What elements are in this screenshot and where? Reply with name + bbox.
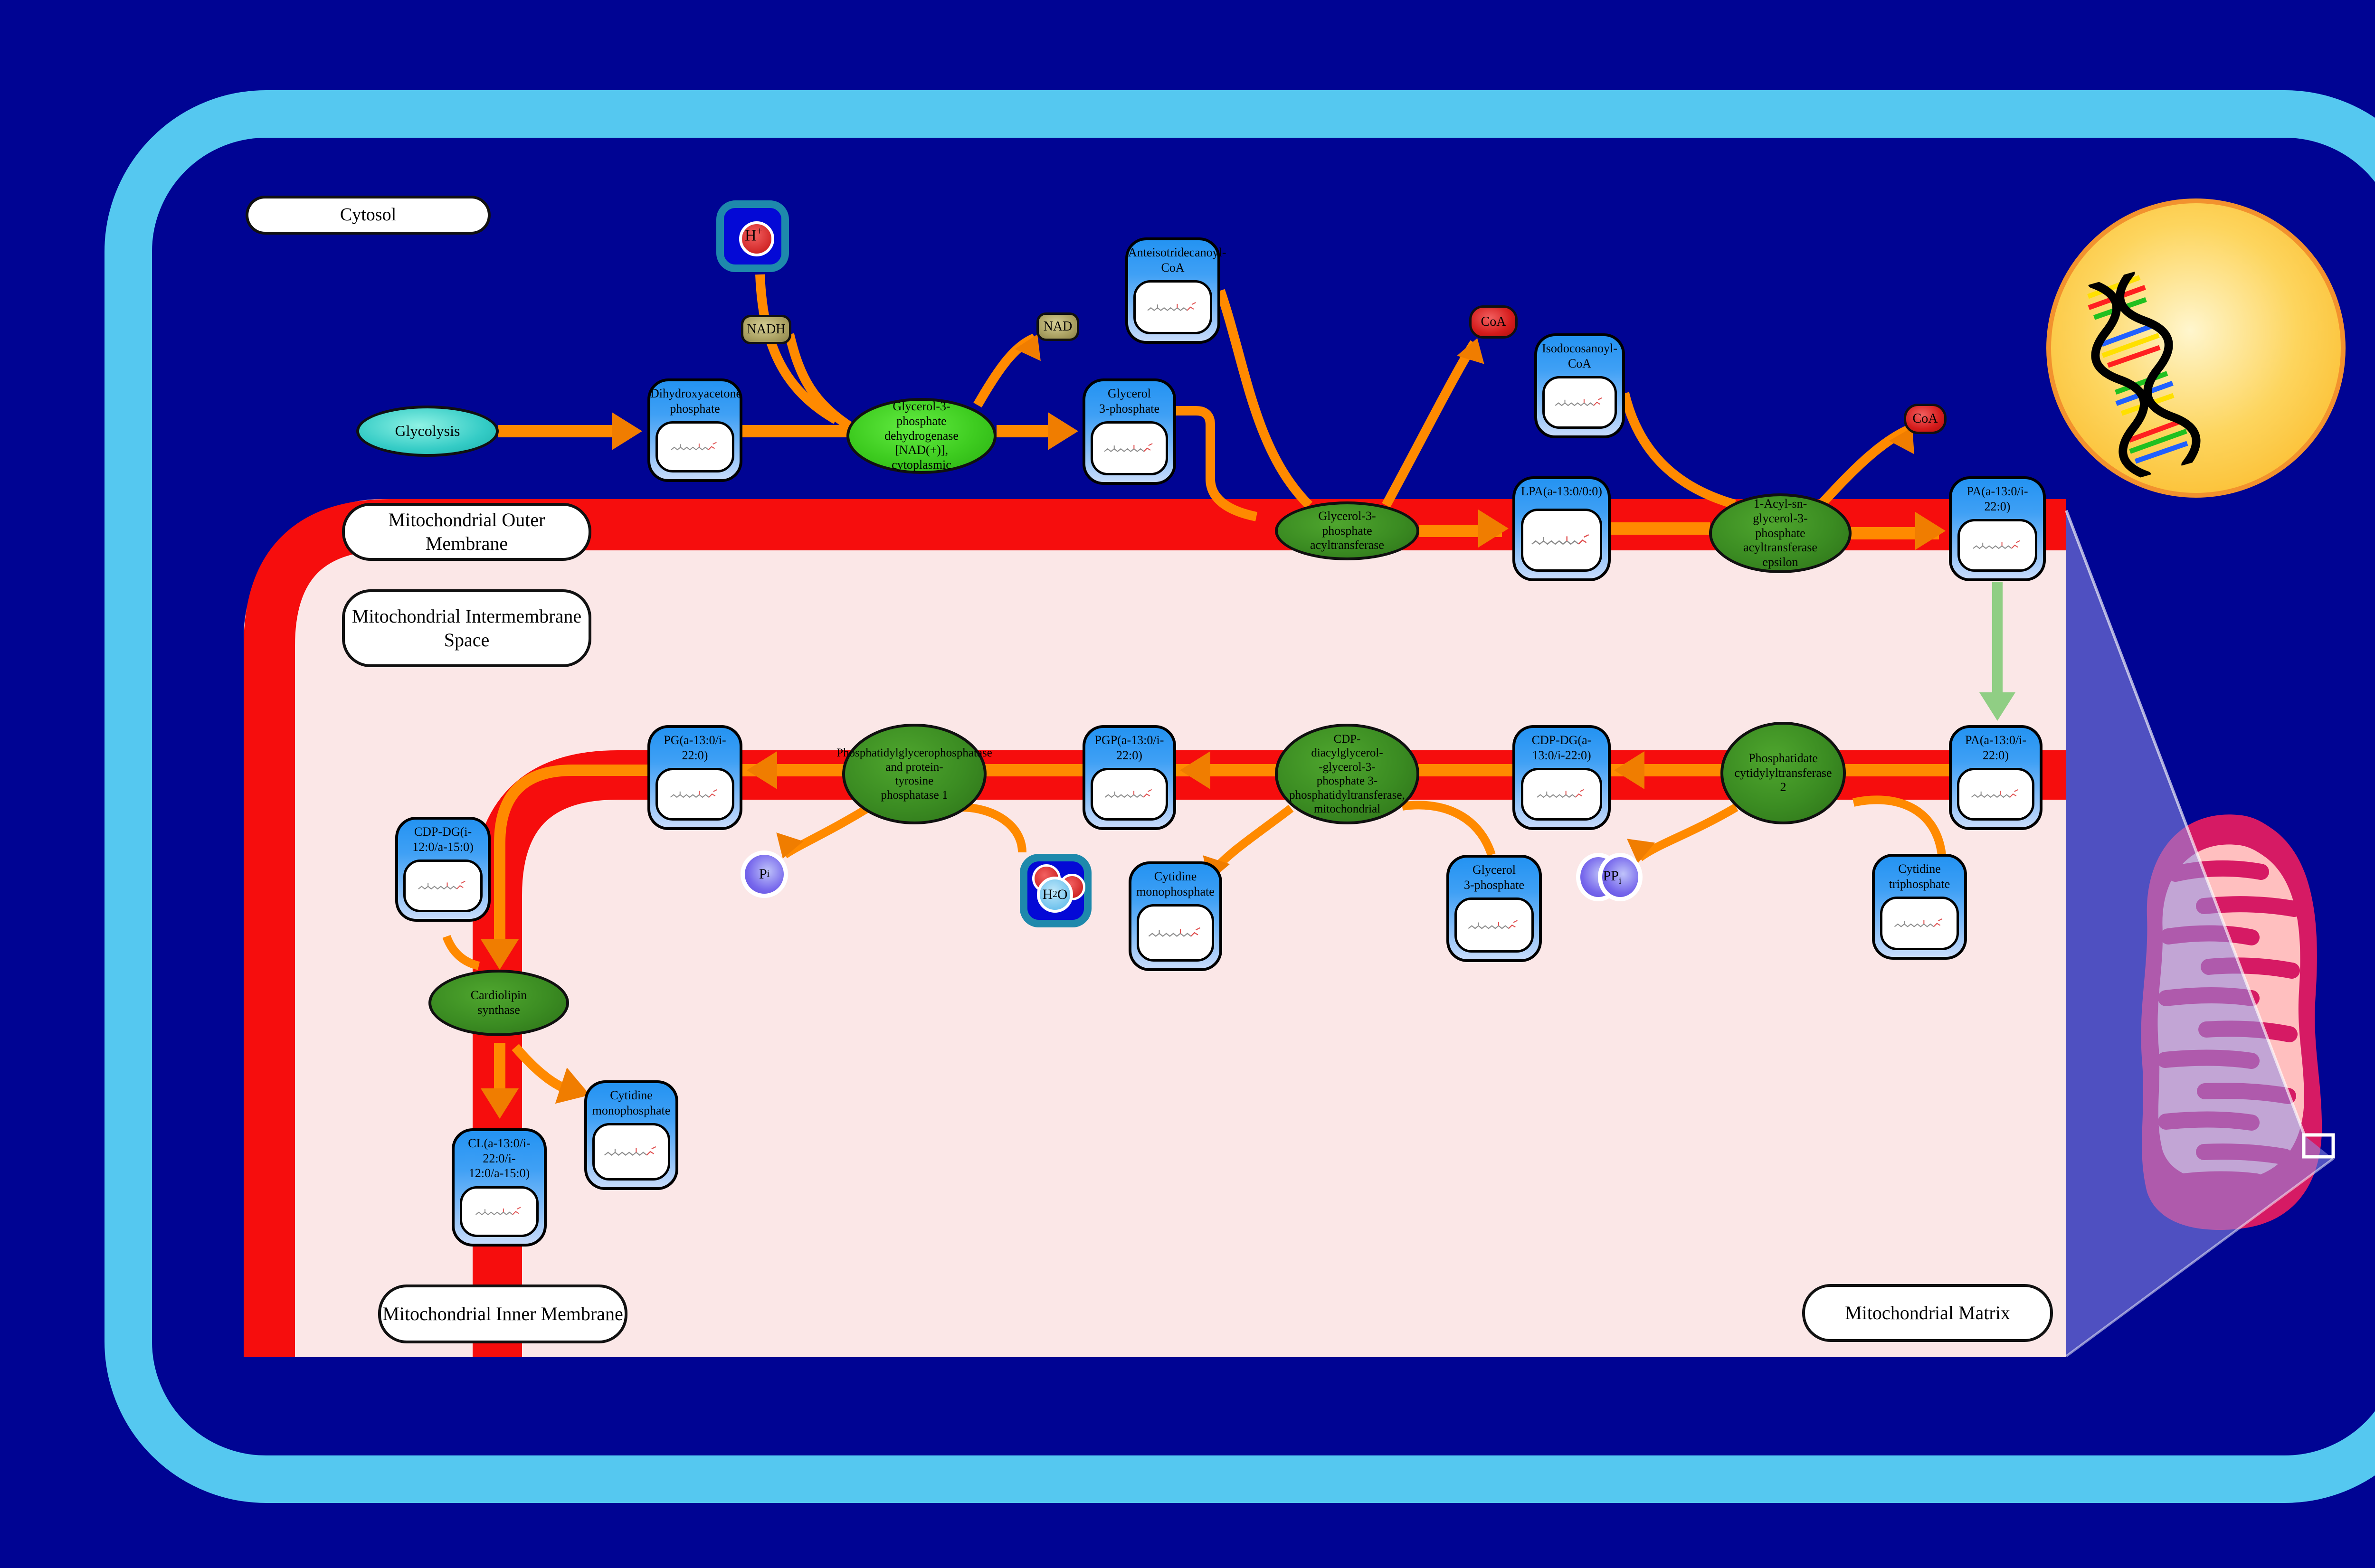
node-pgp[interactable]: PGP(a-13:0/i- 22:0) <box>1083 725 1176 830</box>
structure-thumbnail <box>1137 904 1214 962</box>
enzyme-glycerol-3-phosphate-dehydrogenase[interactable]: Glycerol-3- phosphate dehydrogenase [NAD… <box>846 398 997 474</box>
node-glycolysis[interactable]: Glycolysis <box>356 406 499 457</box>
structure-thumbnail <box>1091 768 1168 821</box>
node-anteisotridecanoyl-coa[interactable]: Anteisotridecanoyl- CoA <box>1125 237 1220 344</box>
node-ctp[interactable]: Cytidine triphosphate <box>1872 854 1967 960</box>
structure-thumbnail <box>460 1186 538 1237</box>
enzyme-phosphatidate-cytidylyltransferase-2[interactable]: Phosphatidate cytidylyltransferase 2 <box>1720 722 1846 824</box>
region-label-outer-membrane: Mitochondrial Outer Membrane <box>342 503 591 561</box>
structure-thumbnail <box>1133 280 1212 334</box>
pathway-diagram: Cytosol Mitochondrial Outer Membrane Mit… <box>0 0 2375 1568</box>
node-glycerol-3-phosphate-cytosol[interactable]: Glycerol 3-phosphate <box>1083 378 1176 485</box>
node-cmp-mid[interactable]: Cytidine monophosphate <box>1129 861 1222 971</box>
node-cmp-bottom[interactable]: Cytidine monophosphate <box>584 1080 678 1190</box>
structure-thumbnail <box>655 421 734 472</box>
proton-icon[interactable]: H+ <box>716 200 789 272</box>
enzyme-ptpmt1[interactable]: Phosphatidylglycerophosphatase and prote… <box>842 724 987 824</box>
region-label-inner-membrane: Mitochondrial Inner Membrane <box>378 1285 627 1343</box>
structure-thumbnail <box>1880 897 1958 950</box>
node-isodocosanoyl-coa[interactable]: Isodocosanoyl- CoA <box>1534 333 1625 438</box>
structure-thumbnail <box>1091 421 1168 475</box>
region-label-cytosol: Cytosol <box>246 196 491 235</box>
enzyme-cardiolipin-synthase[interactable]: Cardiolipin synthase <box>428 970 569 1036</box>
enzyme-gpat[interactable]: Glycerol-3- phosphate acyltransferase <box>1275 501 1419 560</box>
node-cdp-dg-2[interactable]: CDP-DG(i- 12:0/a-15:0) <box>395 817 491 922</box>
node-dhap[interactable]: Dihydroxyacetone phosphate <box>647 378 742 482</box>
structure-thumbnail <box>655 768 734 821</box>
phosphate-pi[interactable]: Pi <box>741 850 788 898</box>
structure-thumbnail <box>1957 519 2038 572</box>
cofactor-nadh[interactable]: NADH <box>741 315 791 344</box>
pyrophosphate-ppi[interactable]: PPi <box>1598 853 1643 901</box>
water-icon[interactable]: H2O <box>1020 854 1092 927</box>
structure-thumbnail <box>1454 897 1533 953</box>
structure-thumbnail <box>1521 509 1603 572</box>
region-label-matrix: Mitochondrial Matrix <box>1802 1284 2053 1342</box>
structure-thumbnail <box>1957 768 2034 821</box>
node-pg[interactable]: PG(a-13:0/i- 22:0) <box>647 725 742 830</box>
nucleus <box>2046 198 2346 498</box>
enzyme-agpat-epsilon[interactable]: 1-Acyl-sn- glycerol-3- phosphate acyltra… <box>1709 493 1852 573</box>
node-pa-inner[interactable]: PA(a-13:0/i- 22:0) <box>1949 725 2042 830</box>
cofactor-coa-2[interactable]: CoA <box>1904 404 1947 434</box>
region-label-intermembrane-space: Mitochondrial Intermembrane Space <box>342 589 591 667</box>
node-glycerol-3-phosphate-matrix[interactable]: Glycerol 3-phosphate <box>1446 855 1542 962</box>
node-cdp-dg[interactable]: CDP-DG(a- 13:0/i-22:0) <box>1512 725 1611 830</box>
structure-thumbnail <box>403 860 482 912</box>
node-cardiolipin[interactable]: CL(a-13:0/i- 22:0/i- 12:0/a-15:0) <box>452 1128 547 1247</box>
enzyme-pgp-synthase[interactable]: CDP- diacylglycerol- -glycerol-3- phosph… <box>1275 724 1419 824</box>
structure-thumbnail <box>1542 376 1617 429</box>
cofactor-nad[interactable]: NAD <box>1036 312 1079 341</box>
node-pa-outer[interactable]: PA(a-13:0/i- 22:0) <box>1949 476 2046 581</box>
node-lpa[interactable]: LPA(a-13:0/0:0) <box>1512 476 1611 581</box>
cofactor-coa-1[interactable]: CoA <box>1469 305 1518 339</box>
structure-thumbnail <box>1521 768 1603 821</box>
structure-thumbnail <box>592 1123 670 1181</box>
